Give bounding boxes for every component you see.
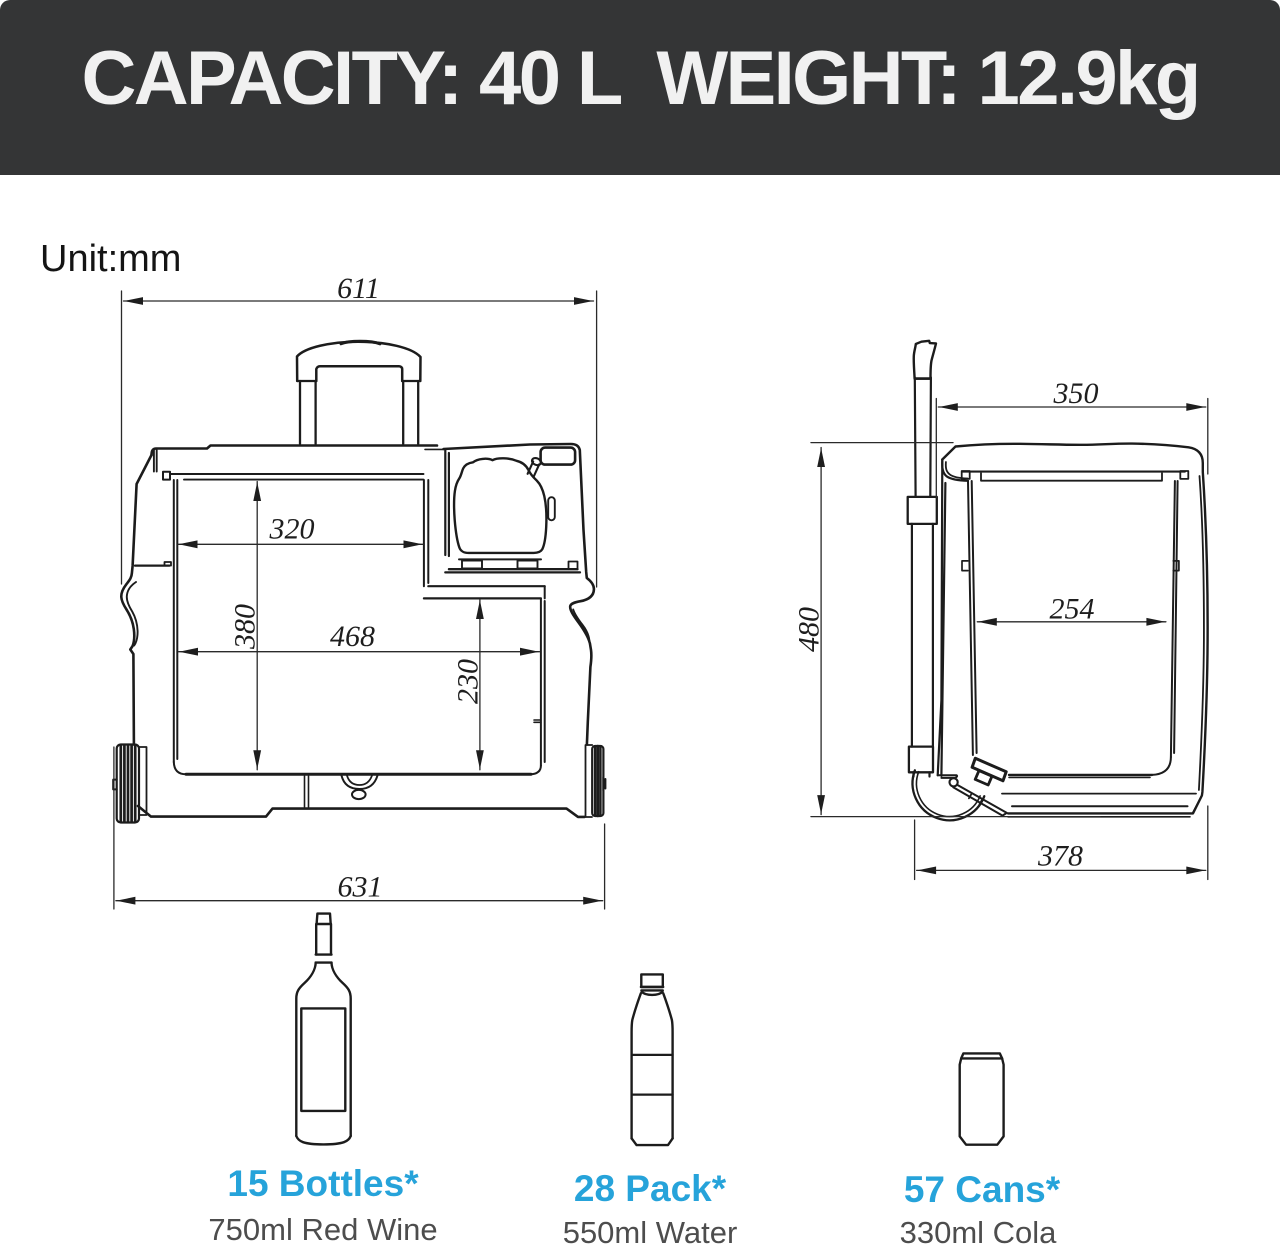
svg-text:750ml Red Wine: 750ml Red Wine	[208, 1212, 437, 1245]
svg-text:15 Bottles*: 15 Bottles*	[227, 1163, 419, 1204]
svg-text:Unit:mm: Unit:mm	[40, 238, 181, 280]
svg-text:468: 468	[330, 620, 375, 653]
svg-text:330ml Cola: 330ml Cola	[900, 1215, 1058, 1245]
svg-text:350: 350	[1053, 377, 1099, 410]
svg-text:631: 631	[338, 871, 383, 904]
svg-text:611: 611	[337, 272, 380, 305]
svg-text:380: 380	[229, 604, 262, 650]
svg-text:57 Cans*: 57 Cans*	[904, 1169, 1061, 1210]
svg-text:254: 254	[1050, 593, 1095, 626]
svg-text:230: 230	[452, 659, 485, 704]
svg-text:550ml Water: 550ml Water	[563, 1215, 738, 1245]
svg-text:28 Pack*: 28 Pack*	[574, 1168, 727, 1209]
svg-text:320: 320	[269, 513, 315, 546]
svg-text:378: 378	[1037, 840, 1083, 873]
svg-text:480: 480	[793, 607, 826, 652]
